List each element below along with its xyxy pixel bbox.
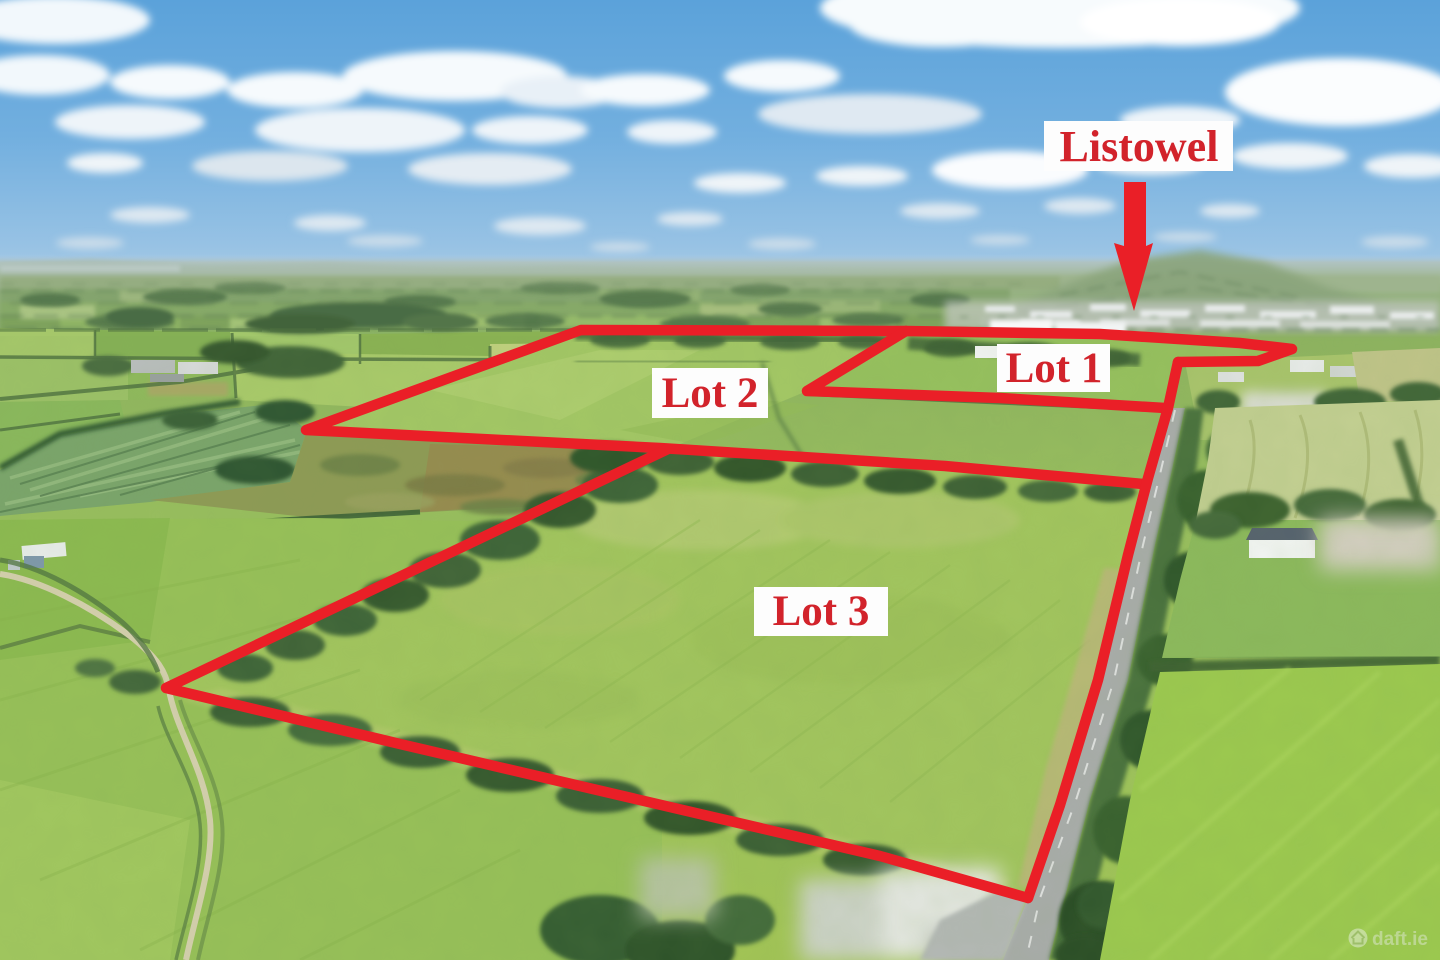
svg-text:Lot 1: Lot 1 (1006, 345, 1103, 392)
svg-text:Listowel: Listowel (1060, 122, 1219, 171)
svg-text:Lot 2: Lot 2 (662, 370, 759, 417)
svg-text:daft.ie: daft.ie (1372, 929, 1428, 950)
svg-text:Lot 3: Lot 3 (773, 588, 870, 635)
